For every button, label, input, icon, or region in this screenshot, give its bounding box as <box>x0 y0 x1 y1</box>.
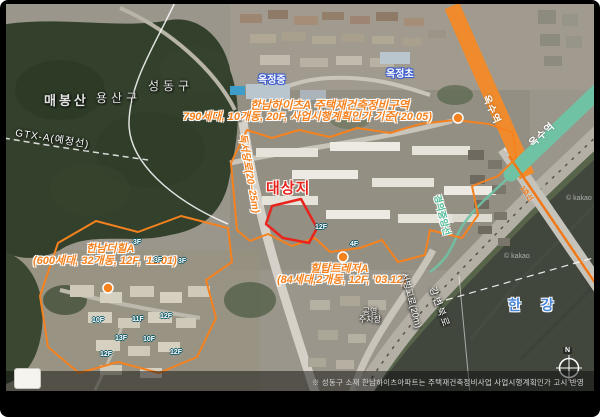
floor-badge: 12F <box>100 351 112 358</box>
floor-badge: 3F <box>133 239 141 246</box>
floor-badge: 4F <box>350 241 358 248</box>
kakao-watermark: © kakao <box>504 253 530 260</box>
label-okjeong-middle-school: 옥정중 <box>258 76 286 87</box>
compass-north-label: N <box>563 347 572 354</box>
annotation-thehill-title: 한남더힐A <box>86 244 134 256</box>
label-seongdong-gu: 성동구 <box>148 80 193 93</box>
caption-bar: ※ 성동구 소재 한남하이츠아파트는 주택재건축정비사업 사업시행계획인가 고시… <box>6 371 594 391</box>
floor-badge: 3F <box>178 258 186 265</box>
kakao-watermark: © kakao <box>566 195 592 202</box>
map-artwork <box>6 4 594 391</box>
annotation-target-site: 대상지 <box>266 181 310 197</box>
floor-badge: 10F <box>92 317 104 324</box>
map-badge[interactable] <box>14 368 41 389</box>
satellite-map[interactable]: 매봉산 용산구 성동구 한 강 옥정중 옥정초 한남하이츠A 주택재건축정비구역… <box>6 4 594 391</box>
annotation-hannam-heights-detail: 790세대, 10개동, 20F, 사업시행계획인가 기준('20.05) <box>183 112 432 124</box>
map-world: 매봉산 용산구 성동구 한 강 옥정중 옥정초 한남하이츠A 주택재건축정비구역… <box>6 4 594 391</box>
footnote-text: ※ 성동구 소재 한남하이츠아파트는 주택재건축정비사업 사업시행계획인가 고시… <box>312 377 584 388</box>
floor-badge: 13F <box>115 335 127 342</box>
map-frame: 매봉산 용산구 성동구 한 강 옥정중 옥정초 한남하이츠A 주택재건축정비구역… <box>0 0 600 417</box>
marker-dot <box>453 113 463 123</box>
floor-badge: 12F <box>170 349 182 356</box>
floor-badge: 12F <box>160 313 172 320</box>
label-parking-line2: 주차장 <box>348 316 392 324</box>
floor-badge: 12F <box>315 224 327 231</box>
floor-badge: 10F <box>143 336 155 343</box>
label-okjeong-elementary: 옥정초 <box>386 70 414 81</box>
marker-dot <box>338 252 348 262</box>
annotation-hilltop-detail: (84세대,2개동, 12F, '03.12) <box>277 275 406 287</box>
label-parking: 공영 주차장 <box>348 308 392 325</box>
marker-dot <box>103 283 113 293</box>
label-yongsan-gu: 용산구 <box>96 92 141 105</box>
floor-badge: 3F <box>154 257 162 264</box>
label-han-river: 한 강 <box>508 298 562 313</box>
label-maebongsan: 매봉산 <box>44 94 89 108</box>
floor-badge: 11F <box>132 316 144 323</box>
pool <box>230 86 245 95</box>
